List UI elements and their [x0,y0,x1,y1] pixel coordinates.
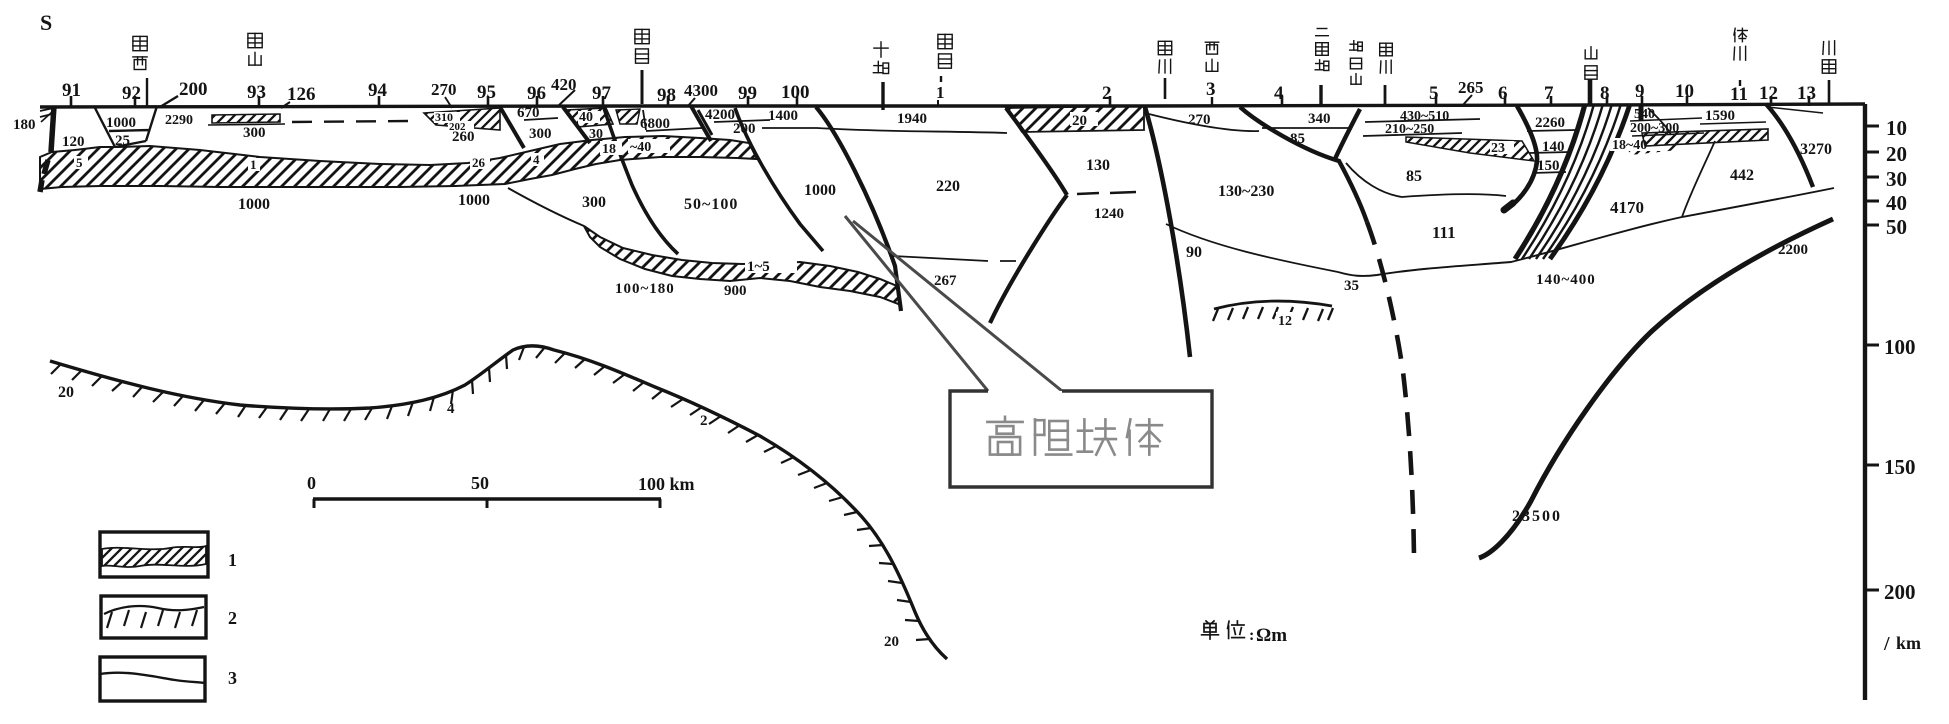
svg-text:300: 300 [582,194,606,211]
svg-text:120: 120 [62,134,85,150]
svg-text:220: 220 [936,178,960,195]
svg-text:2: 2 [1102,83,1112,104]
svg-text:150: 150 [1537,158,1560,174]
svg-text:35: 35 [1344,278,1359,294]
svg-text:90: 90 [1186,244,1202,261]
svg-text:4: 4 [1274,83,1284,104]
svg-text:98: 98 [657,85,676,106]
svg-text:4300: 4300 [684,81,718,100]
svg-text:4: 4 [533,152,540,167]
svg-text:100 km: 100 km [638,474,695,494]
svg-text:210~250: 210~250 [1385,122,1434,137]
svg-text:540: 540 [1634,107,1655,122]
svg-text:9: 9 [1635,81,1645,102]
svg-text:94: 94 [368,80,388,101]
svg-text:140: 140 [1542,139,1565,155]
svg-text:2200: 2200 [1778,242,1808,258]
svg-text:300: 300 [243,125,266,141]
svg-text:18: 18 [602,142,616,157]
svg-text:26: 26 [472,155,486,170]
svg-text:/: / [1883,633,1890,655]
svg-text:92: 92 [122,83,141,104]
svg-text:20: 20 [1886,142,1907,166]
svg-text:91: 91 [62,80,81,101]
svg-text:6800: 6800 [640,116,670,132]
svg-text:99: 99 [738,83,757,104]
svg-text:2: 2 [700,413,708,429]
svg-text:442: 442 [1730,167,1754,184]
svg-text:50: 50 [471,473,489,493]
svg-text:11: 11 [1730,84,1748,105]
svg-text:S: S [40,10,52,35]
svg-text:85: 85 [1290,131,1305,147]
svg-text:200: 200 [1884,580,1916,604]
svg-text:1400: 1400 [768,108,798,124]
svg-text:85: 85 [1406,168,1422,185]
svg-text:150: 150 [1884,455,1916,479]
svg-text:13: 13 [1797,83,1816,104]
svg-text:1: 1 [936,83,945,102]
svg-text:20: 20 [884,634,899,650]
svg-text:126: 126 [287,84,316,105]
svg-text:50: 50 [1886,215,1907,239]
svg-text:1240: 1240 [1094,206,1124,222]
svg-text:100: 100 [1884,335,1916,359]
svg-text:1000: 1000 [458,192,490,209]
svg-text:1: 1 [250,157,257,172]
svg-text:2: 2 [228,608,237,628]
svg-text:~40: ~40 [630,140,651,155]
svg-text:1000: 1000 [106,115,136,131]
svg-text:1: 1 [228,550,237,570]
svg-text:260: 260 [452,129,475,145]
svg-text:40: 40 [579,110,593,125]
svg-text:20: 20 [1072,113,1087,129]
svg-text:18~40: 18~40 [1612,138,1647,153]
svg-text:12: 12 [1759,83,1778,104]
svg-text:267: 267 [934,273,957,289]
svg-text:270: 270 [431,80,457,99]
svg-text:4170: 4170 [1610,198,1644,217]
svg-text:265: 265 [1458,78,1484,97]
svg-text:140~400: 140~400 [1536,272,1596,288]
svg-text:900: 900 [724,283,747,299]
svg-text::: : [1249,627,1254,644]
svg-text:270: 270 [1188,112,1211,128]
svg-text:100~180: 100~180 [615,281,675,297]
svg-text:300: 300 [529,126,552,142]
svg-text:130: 130 [1086,157,1110,174]
svg-text:23500: 23500 [1512,508,1562,525]
svg-text:1590: 1590 [1705,108,1735,124]
svg-text:2290: 2290 [165,113,193,128]
svg-text:97: 97 [592,83,612,104]
svg-text:10: 10 [1886,116,1907,140]
svg-text:5: 5 [1429,83,1439,104]
svg-text:1000: 1000 [804,182,836,199]
svg-text:10: 10 [1675,81,1694,102]
svg-text:340: 340 [1308,111,1331,127]
svg-text:23: 23 [1491,141,1505,156]
svg-text:4: 4 [447,401,455,417]
svg-text:40: 40 [1886,191,1907,215]
svg-text:180: 180 [13,117,36,133]
svg-text:93: 93 [247,82,266,103]
svg-text:96: 96 [527,83,546,104]
svg-text:95: 95 [477,82,496,103]
svg-text:4200: 4200 [705,107,735,123]
svg-text:8: 8 [1600,83,1610,104]
svg-text:3270: 3270 [1800,141,1832,158]
svg-text:200: 200 [179,79,208,100]
svg-text:0: 0 [307,473,316,493]
svg-text:Ωm: Ωm [1256,625,1287,646]
svg-text:30: 30 [1886,167,1907,191]
svg-text:7: 7 [1544,83,1554,104]
svg-text:20: 20 [58,384,74,401]
svg-text:km: km [1896,633,1921,653]
svg-text:50~100: 50~100 [684,196,738,213]
svg-text:5: 5 [76,155,83,170]
svg-text:1940: 1940 [897,111,927,127]
svg-text:100: 100 [781,82,810,103]
svg-text:130~230: 130~230 [1218,183,1274,200]
svg-text:670: 670 [517,105,540,121]
svg-text:1000: 1000 [238,196,270,213]
svg-text:12: 12 [1278,314,1292,329]
svg-text:1~5: 1~5 [747,259,770,275]
svg-text:2260: 2260 [1535,115,1565,131]
svg-text:3: 3 [228,668,237,688]
svg-text:3: 3 [1206,79,1216,100]
svg-text:6: 6 [1498,83,1508,104]
svg-text:111: 111 [1432,223,1456,242]
